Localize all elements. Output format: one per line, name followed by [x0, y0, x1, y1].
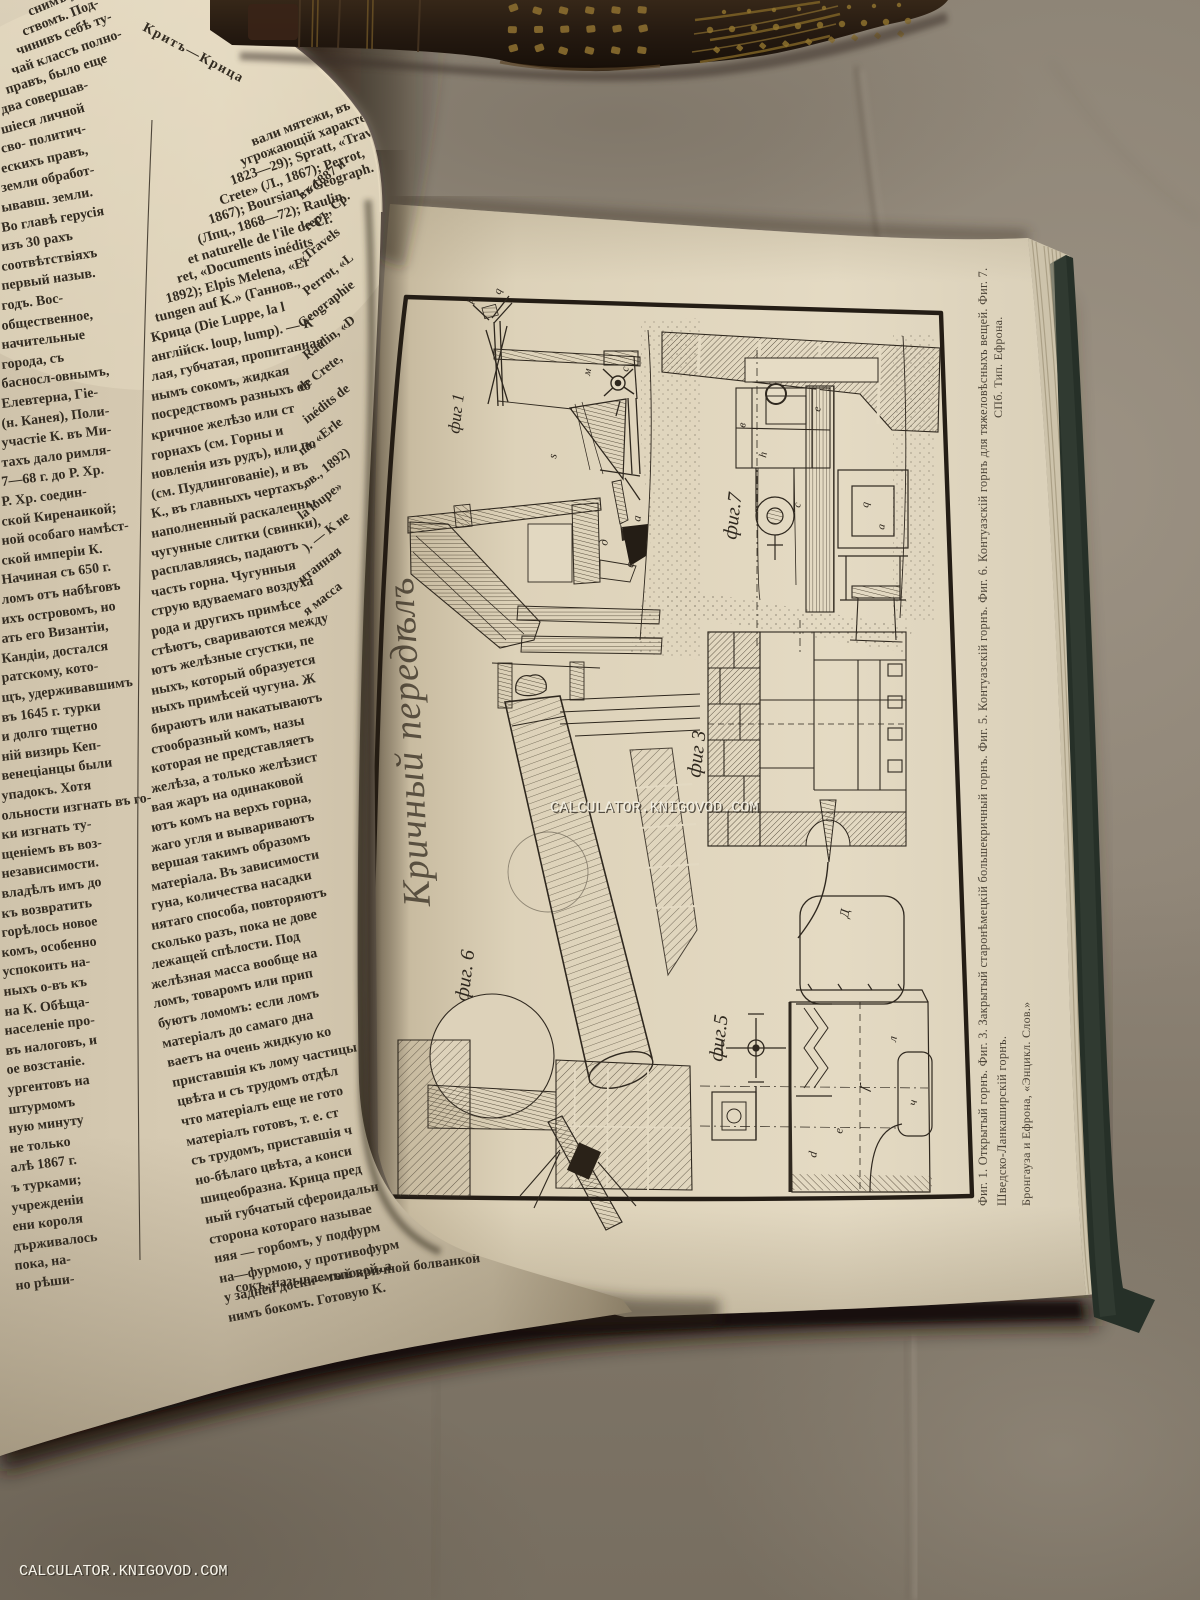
- svg-text:Фиг. 1. Открытый горнъ. Фиг.: Фиг. 1. Открытый горнъ. Фиг. 3. Закрытый…: [976, 268, 990, 1207]
- svg-text:Шведско-Ланкаширскій горнъ.: Шведско-Ланкаширскій горнъ.: [995, 1036, 1009, 1206]
- svg-text:Бронгауза и Ефрона, «Энцикл. С: Бронгауза и Ефрона, «Энцикл. Слов.»: [1019, 1002, 1033, 1206]
- svg-text:CALCULATOR.KNIGOVOD.COM: CALCULATOR.KNIGOVOD.COM: [19, 1562, 227, 1580]
- svg-text:СПб. Тип. Ефрона.: СПб. Тип. Ефрона.: [991, 316, 1005, 418]
- svg-text:CALCULATOR.KNIGOVOD.COM: CALCULATOR.KNIGOVOD.COM: [550, 799, 758, 817]
